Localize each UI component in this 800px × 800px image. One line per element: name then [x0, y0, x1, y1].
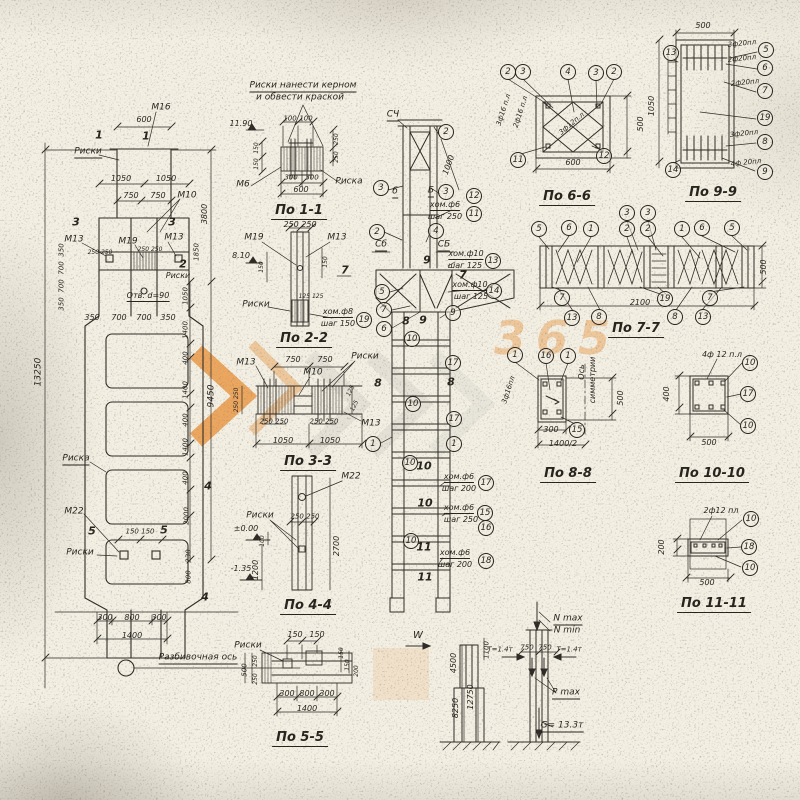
callout-17: 17	[478, 475, 494, 491]
callout-14: 14	[486, 283, 502, 299]
callout-1: 1	[507, 347, 523, 363]
callout-5: 5	[531, 221, 547, 237]
callout-2: 2	[640, 221, 656, 237]
callout-10: 10	[742, 355, 758, 371]
callout-3: 3	[438, 184, 454, 200]
callout-3: 3	[619, 205, 635, 221]
callout-12: 12	[596, 148, 612, 164]
callout-12: 12	[466, 188, 482, 204]
callout-2: 2	[369, 224, 385, 240]
callout-10: 10	[740, 418, 756, 434]
callout-15: 15	[477, 505, 493, 521]
callout-13: 13	[695, 309, 711, 325]
callout-17: 17	[446, 411, 462, 427]
callout-1: 1	[674, 221, 690, 237]
callout-6: 6	[561, 220, 577, 236]
callout-13: 13	[485, 253, 501, 269]
callout-19: 19	[356, 312, 372, 328]
callout-19: 19	[657, 291, 673, 307]
callout-9: 9	[757, 164, 773, 180]
callout-2: 2	[606, 64, 622, 80]
callout-8: 8	[757, 134, 773, 150]
callout-18: 18	[741, 539, 757, 555]
callout-7: 7	[554, 290, 570, 306]
callout-19: 19	[757, 110, 773, 126]
callout-10: 10	[404, 331, 420, 347]
callout-5: 5	[724, 220, 740, 236]
callout-10: 10	[743, 511, 759, 527]
callout-9: 9	[445, 305, 461, 321]
callout-2: 2	[619, 221, 635, 237]
callout-11: 11	[466, 206, 482, 222]
callout-3: 3	[640, 205, 656, 221]
callout-1: 1	[583, 221, 599, 237]
callout-15: 15	[569, 422, 585, 438]
callout-8: 8	[667, 309, 683, 325]
callout-3: 3	[373, 180, 389, 196]
rebar-callouts-layer: 2331211241357614910171017111017151610181…	[0, 0, 800, 800]
callout-13: 13	[564, 310, 580, 326]
callout-4: 4	[560, 64, 576, 80]
callout-6: 6	[757, 60, 773, 76]
callout-7: 7	[376, 302, 392, 318]
callout-17: 17	[740, 386, 756, 402]
callout-5: 5	[374, 284, 390, 300]
callout-14: 14	[665, 162, 681, 178]
callout-11: 11	[510, 152, 526, 168]
callout-2: 2	[500, 64, 516, 80]
callout-1: 1	[446, 436, 462, 452]
drawing-sheet: 600М16Риски1111.9010501050750750М1038003…	[0, 0, 800, 800]
callout-5: 5	[758, 42, 774, 58]
callout-2: 2	[438, 124, 454, 140]
callout-17: 17	[445, 355, 461, 371]
callout-10: 10	[742, 560, 758, 576]
callout-4: 4	[428, 223, 444, 239]
callout-1: 1	[365, 436, 381, 452]
callout-18: 18	[478, 553, 494, 569]
callout-10: 10	[402, 455, 418, 471]
callout-10: 10	[403, 533, 419, 549]
callout-6: 6	[694, 220, 710, 236]
callout-7: 7	[702, 290, 718, 306]
callout-1: 1	[560, 348, 576, 364]
callout-3: 3	[588, 65, 604, 81]
callout-3: 3	[515, 64, 531, 80]
callout-16: 16	[478, 520, 494, 536]
callout-10: 10	[405, 396, 421, 412]
callout-8: 8	[591, 309, 607, 325]
callout-13: 13	[663, 45, 679, 61]
callout-16: 16	[538, 348, 554, 364]
callout-6: 6	[376, 321, 392, 337]
callout-7: 7	[757, 83, 773, 99]
